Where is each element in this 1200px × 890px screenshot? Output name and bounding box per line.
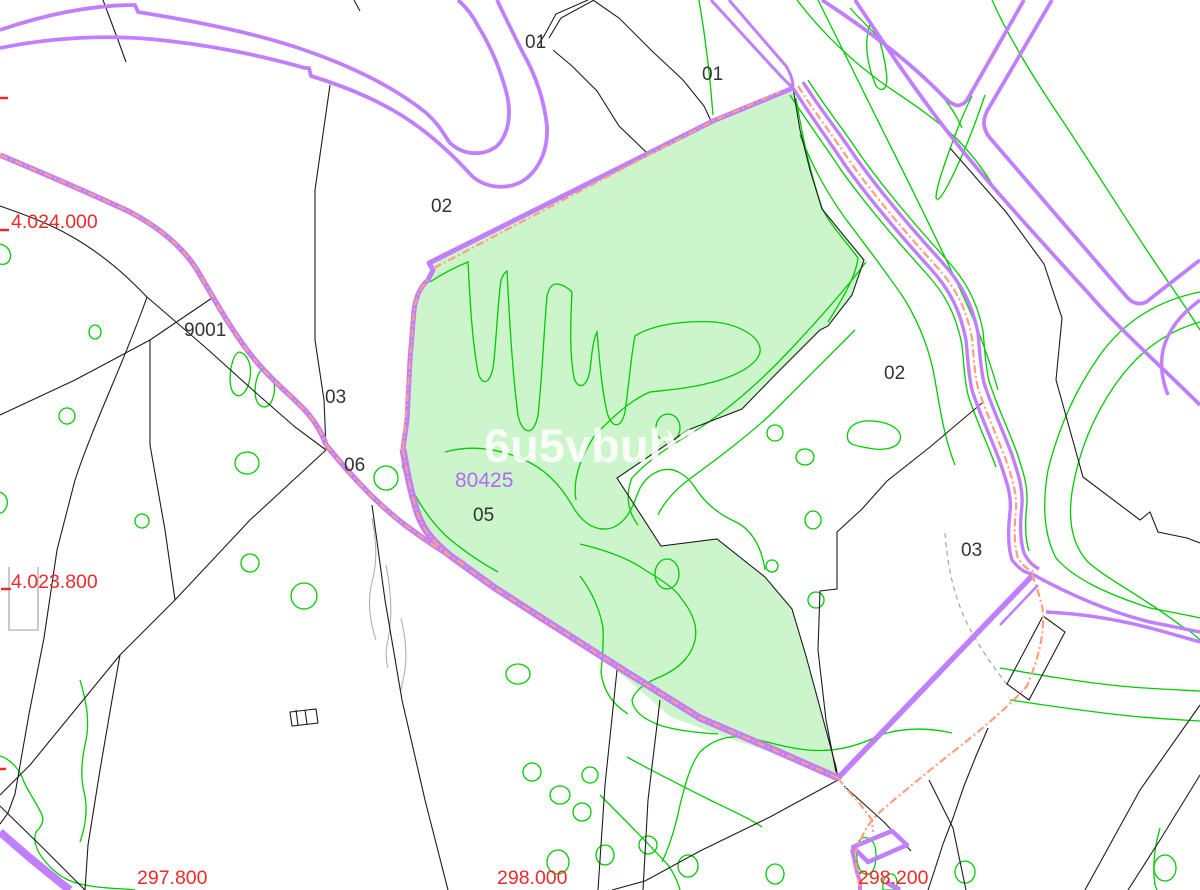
svg-text:297.800: 297.800 xyxy=(137,867,208,889)
svg-text:298.000: 298.000 xyxy=(497,867,568,889)
svg-text:02: 02 xyxy=(431,196,452,217)
svg-text:02: 02 xyxy=(884,363,905,384)
svg-text:298.200: 298.200 xyxy=(858,867,929,889)
svg-text:05: 05 xyxy=(473,505,494,526)
svg-text:03: 03 xyxy=(325,387,346,408)
svg-text:01: 01 xyxy=(702,64,723,85)
svg-text:4.024.000: 4.024.000 xyxy=(11,211,98,233)
svg-text:9001: 9001 xyxy=(184,320,226,341)
svg-text:01: 01 xyxy=(525,32,546,53)
svg-text:6u5vbuh1: 6u5vbuh1 xyxy=(484,419,703,472)
svg-text:80425: 80425 xyxy=(455,469,513,492)
svg-text:03: 03 xyxy=(961,540,982,561)
svg-text:4.023.800: 4.023.800 xyxy=(11,571,98,593)
svg-text:06: 06 xyxy=(344,455,365,476)
